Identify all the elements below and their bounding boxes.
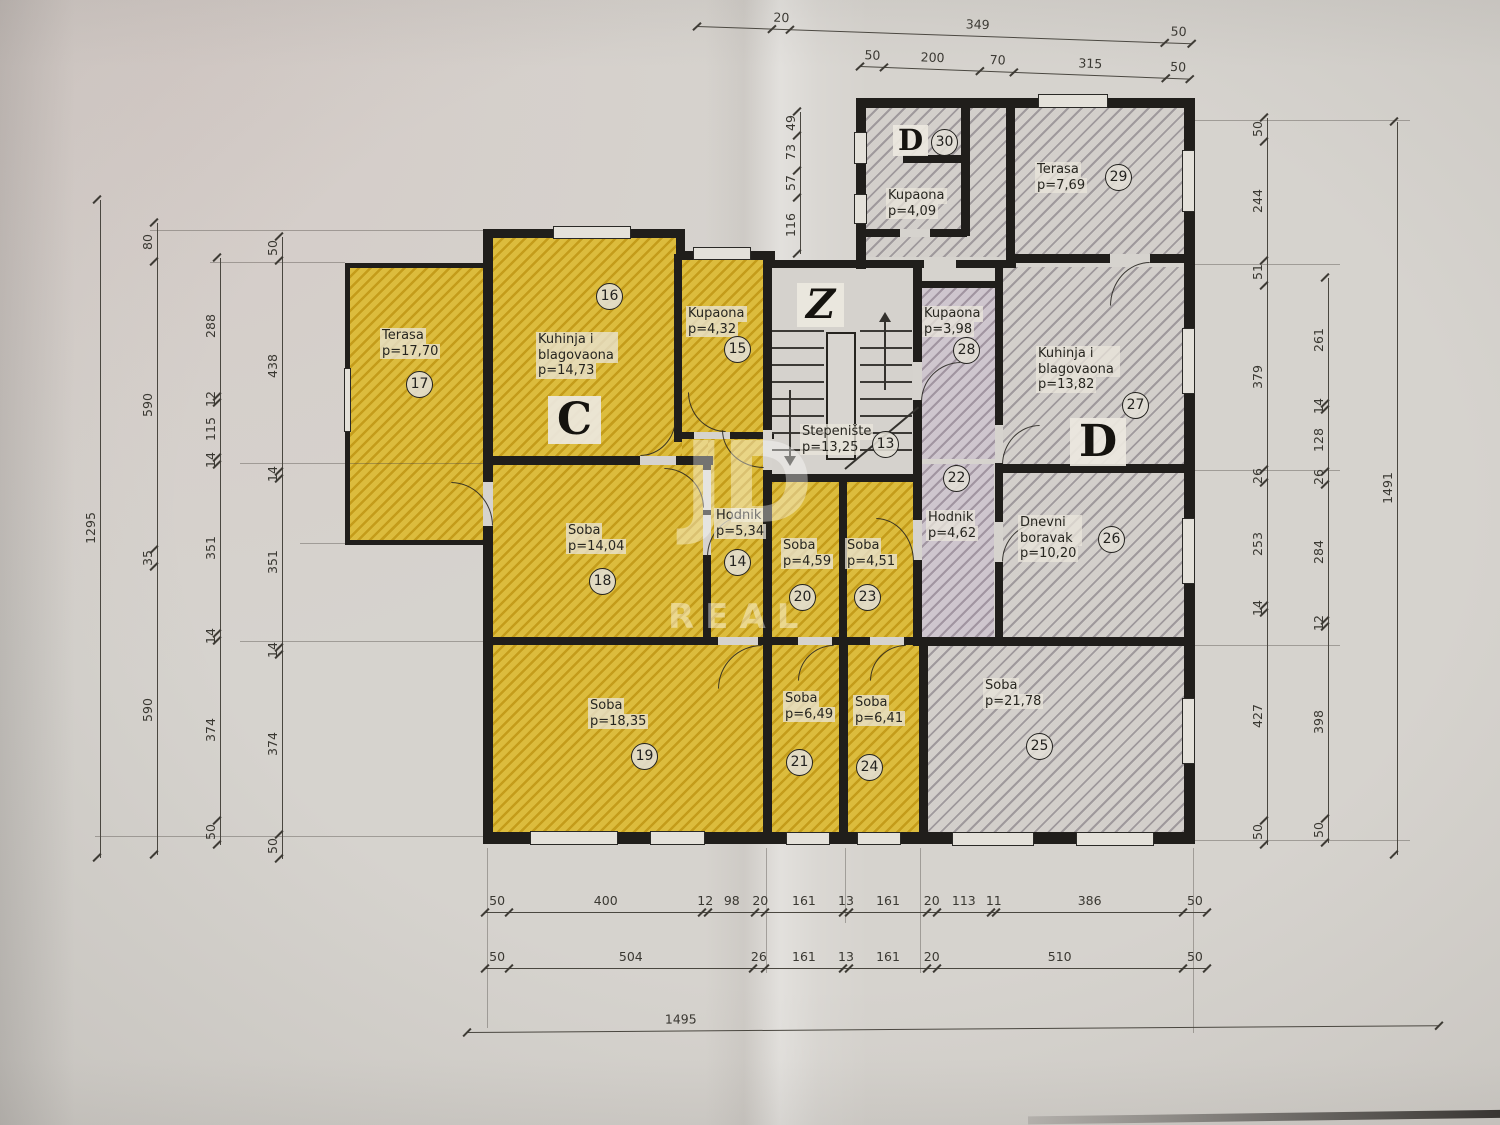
wall-segment bbox=[1006, 104, 1015, 261]
extension-line bbox=[1195, 120, 1410, 121]
room-label-13: Stepeništep=13,25 bbox=[800, 424, 873, 455]
stair-up-arrow bbox=[884, 320, 886, 390]
wall-segment bbox=[1007, 254, 1188, 263]
room-number-28: 28 bbox=[953, 337, 980, 364]
wall-segment bbox=[961, 104, 970, 236]
stairwell-z-letter: Z bbox=[797, 283, 844, 327]
watermark-text: JD bbox=[683, 428, 810, 540]
door-gap bbox=[913, 520, 922, 560]
window bbox=[1182, 698, 1195, 764]
room-number-22: 22 bbox=[943, 465, 970, 492]
room-number-27: 27 bbox=[1122, 392, 1149, 419]
wall-segment bbox=[856, 98, 1195, 108]
door-gap bbox=[870, 637, 904, 645]
window bbox=[952, 832, 1034, 846]
room-label-28: Kupaonap=3,98 bbox=[922, 306, 983, 337]
room-number-16: 16 bbox=[596, 283, 623, 310]
room-label-24: Sobap=6,41 bbox=[853, 695, 905, 726]
window bbox=[553, 226, 631, 239]
dim-top: 502007031550 bbox=[860, 66, 1190, 79]
room-label-23: Sobap=4,51 bbox=[845, 538, 897, 569]
wall-segment bbox=[913, 281, 1003, 288]
room-number-18: 18 bbox=[589, 568, 616, 595]
room-label-16: Kuhinja i blagovaonap=14,73 bbox=[536, 332, 618, 379]
room-label-29: Terasap=7,69 bbox=[1035, 162, 1087, 193]
wall-segment bbox=[345, 263, 493, 268]
apartment-d-letter: D bbox=[1070, 418, 1126, 466]
door-gap bbox=[900, 229, 930, 237]
room-number-25: 25 bbox=[1026, 733, 1053, 760]
paper-edge-shadow bbox=[1028, 1110, 1500, 1125]
wall-segment bbox=[763, 260, 1016, 268]
dim-bottom-overall: 1495 bbox=[467, 1025, 1439, 1032]
room-label-22: Hodnikp=4,62 bbox=[926, 510, 978, 541]
wall-segment bbox=[919, 641, 928, 837]
wall-segment bbox=[345, 540, 493, 545]
window bbox=[1038, 94, 1108, 108]
room-label-18: Sobap=14,04 bbox=[566, 523, 626, 554]
wall-segment bbox=[913, 262, 922, 646]
window bbox=[693, 247, 751, 260]
extension-line bbox=[150, 230, 483, 231]
window bbox=[1182, 518, 1195, 584]
watermark-subtext: REAL bbox=[668, 600, 809, 634]
window bbox=[530, 831, 618, 845]
window bbox=[857, 832, 901, 845]
window bbox=[786, 832, 830, 845]
room-label-27: Kuhinja i blagovaonap=13,82 bbox=[1036, 346, 1120, 393]
window bbox=[854, 194, 867, 224]
room-number-30: 30 bbox=[931, 129, 958, 156]
wall-segment bbox=[483, 229, 493, 842]
room-number-24: 24 bbox=[856, 754, 883, 781]
stair-up-arrowhead bbox=[879, 312, 891, 322]
wall-segment bbox=[856, 98, 866, 269]
extension-line bbox=[95, 836, 483, 837]
room-number-21: 21 bbox=[786, 749, 813, 776]
room-number-14: 14 bbox=[724, 549, 751, 576]
room-number-29: 29 bbox=[1105, 164, 1132, 191]
apartment-d-top-letter: D bbox=[893, 125, 928, 156]
window bbox=[854, 132, 867, 164]
door-gap bbox=[718, 637, 758, 645]
room-number-23: 23 bbox=[854, 584, 881, 611]
window bbox=[1182, 150, 1195, 212]
window bbox=[344, 368, 351, 432]
room-label-26: Dnevni boravakp=10,20 bbox=[1018, 515, 1082, 562]
room-label-25: Sobap=21,78 bbox=[983, 678, 1043, 709]
door-gap bbox=[798, 637, 832, 645]
extension-line bbox=[487, 848, 488, 1028]
floor-plan-scan: 2034950502007031550129580590355902881211… bbox=[0, 0, 1500, 1125]
window bbox=[1076, 832, 1154, 846]
room-number-19: 19 bbox=[631, 743, 658, 770]
room-number-17: 17 bbox=[406, 371, 433, 398]
dim-top-partial: 2034950 bbox=[697, 26, 1192, 43]
room-label-15: Kupaonap=4,32 bbox=[686, 306, 747, 337]
room-fill bbox=[925, 645, 1185, 834]
extension-line bbox=[1193, 848, 1194, 1033]
room-label-19: Sobap=18,35 bbox=[588, 698, 648, 729]
window bbox=[1182, 328, 1195, 394]
door-gap bbox=[924, 260, 956, 268]
extension-line bbox=[1195, 840, 1410, 841]
wall-segment bbox=[916, 637, 1194, 646]
room-label-21: Sobap=6,49 bbox=[783, 691, 835, 722]
room-number-26: 26 bbox=[1098, 526, 1125, 553]
room-label-30: Kupaonap=4,09 bbox=[886, 188, 947, 219]
window bbox=[650, 831, 705, 845]
room-label-17: Terasap=17,70 bbox=[380, 328, 440, 359]
wall-segment bbox=[674, 254, 682, 442]
room-number-15: 15 bbox=[724, 336, 751, 363]
wall-segment bbox=[839, 637, 848, 837]
room-number-13: 13 bbox=[872, 431, 899, 458]
apartment-c-letter: C bbox=[548, 396, 601, 444]
wall-segment bbox=[487, 456, 713, 465]
door-gap bbox=[640, 456, 676, 465]
